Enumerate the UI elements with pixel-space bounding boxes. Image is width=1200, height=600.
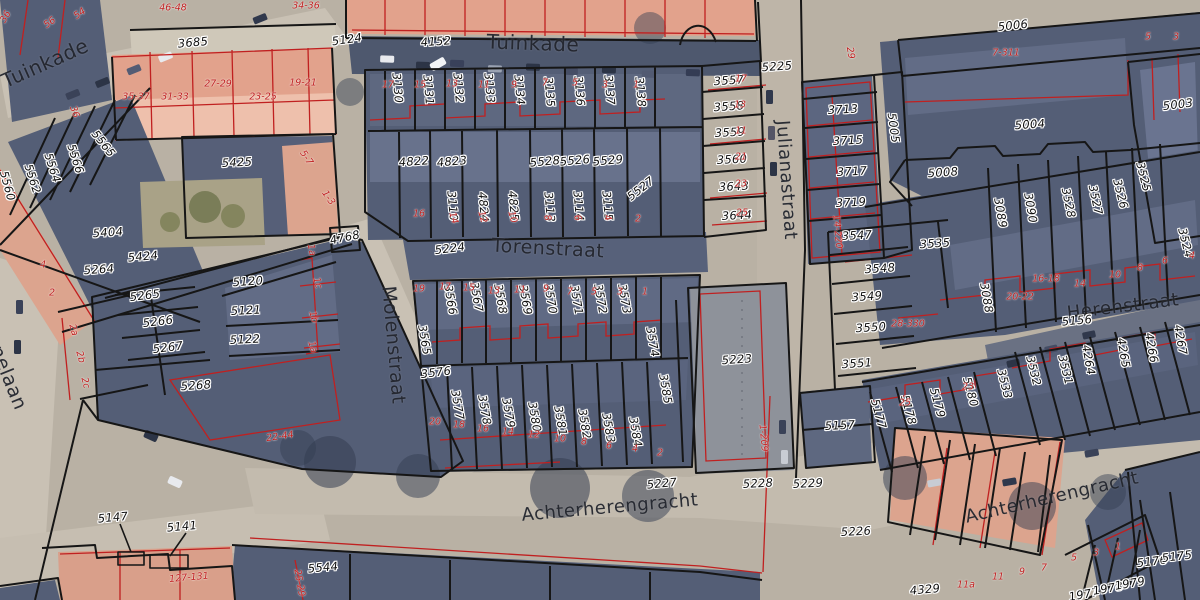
map-canvas — [0, 0, 1200, 600]
map-viewport[interactable]: TuinkadeTuinkadeTorenstraatMolenstraatJu… — [0, 0, 1200, 600]
